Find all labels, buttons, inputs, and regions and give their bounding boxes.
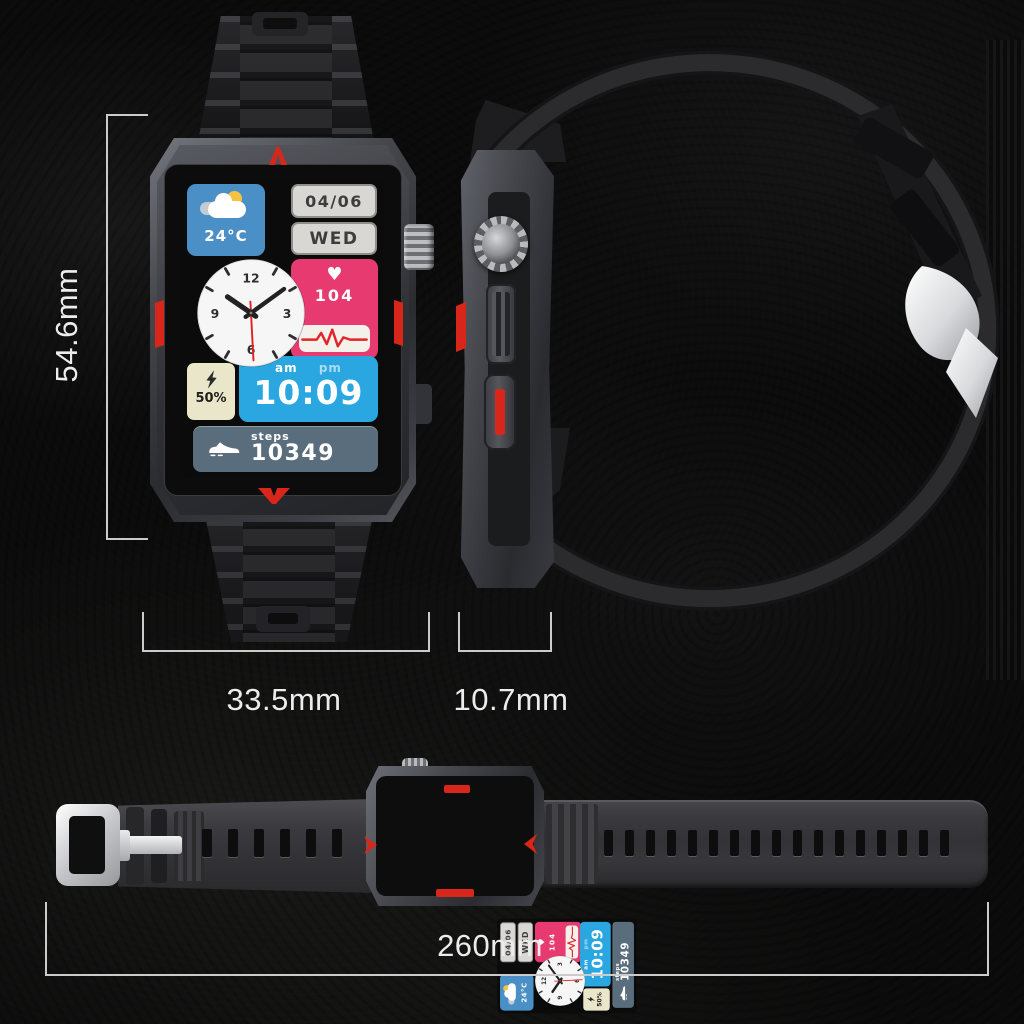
- clock-number-12: 12: [542, 977, 548, 985]
- date-tile: 04/06: [291, 184, 377, 218]
- flat-face-slot: 24°C 04/06 WED ♥ 104 50% am: [386, 788, 524, 884]
- day-tile: WED: [291, 222, 377, 255]
- red-accent-left-bar: [155, 300, 164, 348]
- height-label: 54.6mm: [49, 245, 87, 405]
- side-button-upper: [486, 284, 516, 364]
- lightning-icon: [203, 369, 219, 390]
- thickness-bracket: [458, 612, 552, 652]
- weather-icon: [503, 979, 517, 1004]
- battery-tile: 50%: [187, 363, 235, 420]
- battery-tile: 50%: [583, 988, 610, 1010]
- flat-red-accent-bottom: [436, 889, 474, 897]
- thickness-label: 10.7mm: [446, 682, 576, 718]
- battery-value: 50%: [187, 391, 235, 406]
- shoe-icon: [618, 986, 628, 1002]
- strap-length-label: 260mm: [295, 928, 685, 964]
- analog-clock: 12 3 6 9: [194, 256, 308, 370]
- clock-number-9: 9: [211, 307, 220, 321]
- battery-value: 50%: [596, 988, 603, 1010]
- clock-number-3: 3: [283, 307, 292, 321]
- watch-face: 24°C 04/06 WED ♥ 104 50% am: [181, 178, 385, 478]
- flat-strap-right-holes: [604, 830, 949, 856]
- side-red-accent: [456, 302, 466, 352]
- day-value: WED: [310, 229, 359, 249]
- side-button-lower: [484, 374, 516, 450]
- time-value: 10:09: [239, 376, 378, 409]
- steps-value: 10349: [251, 442, 335, 466]
- smartwatch-dimensions-diagram: 24°C 04/06 WED ♥ 104 50% am: [0, 0, 1024, 1024]
- height-bracket: [106, 114, 148, 540]
- flat-strap-right-ridges: [546, 804, 598, 884]
- flat-strap-left-holes: [202, 829, 342, 857]
- clock-number-9: 9: [558, 996, 564, 1000]
- flat-red-accent-top: [444, 785, 470, 793]
- weather-icon: [200, 191, 254, 221]
- width-bracket: [142, 612, 430, 652]
- red-accent-right-bar: [394, 300, 403, 346]
- steps-text: steps 10349: [251, 431, 335, 466]
- width-label: 33.5mm: [142, 682, 426, 718]
- front-crown: [404, 224, 434, 270]
- shoe-icon: [207, 438, 241, 460]
- lightning-icon: [586, 996, 596, 1003]
- temperature-value: 24°C: [520, 974, 528, 1010]
- steps-tile: steps 10349: [193, 426, 378, 472]
- side-crown: [474, 216, 528, 272]
- ecg-icon: [299, 325, 370, 352]
- cloud-front-icon: [508, 983, 516, 1001]
- flat-strap-right: [542, 800, 988, 888]
- weather-tile: 24°C: [500, 974, 533, 1010]
- date-value: 04/06: [305, 192, 363, 211]
- weather-tile: 24°C: [187, 184, 265, 256]
- temperature-value: 24°C: [187, 227, 265, 245]
- front-strap-top-tip: [252, 12, 308, 36]
- cloud-front-icon: [208, 201, 246, 218]
- clock-number-12: 12: [242, 272, 259, 286]
- flat-buckle-frame: [56, 804, 120, 886]
